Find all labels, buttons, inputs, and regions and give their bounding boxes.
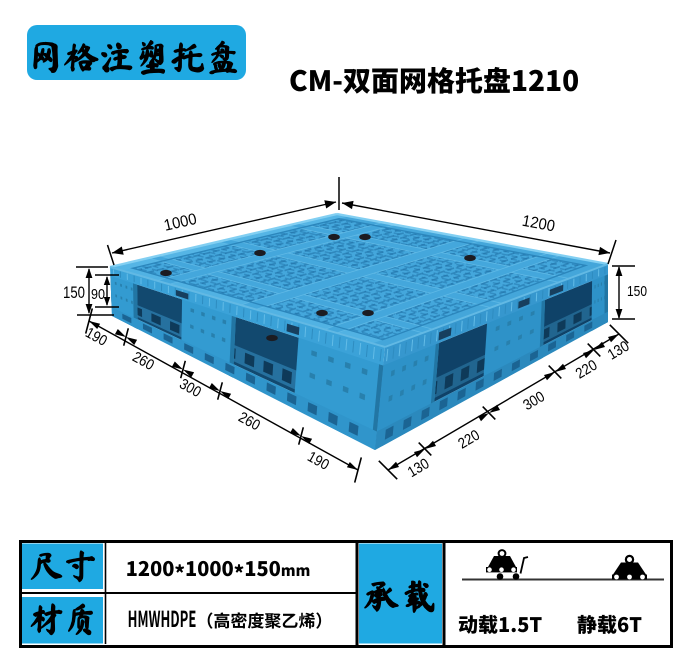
svg-text:150: 150: [63, 283, 85, 302]
svg-text:90: 90: [91, 286, 105, 303]
svg-text:150: 150: [627, 283, 647, 300]
